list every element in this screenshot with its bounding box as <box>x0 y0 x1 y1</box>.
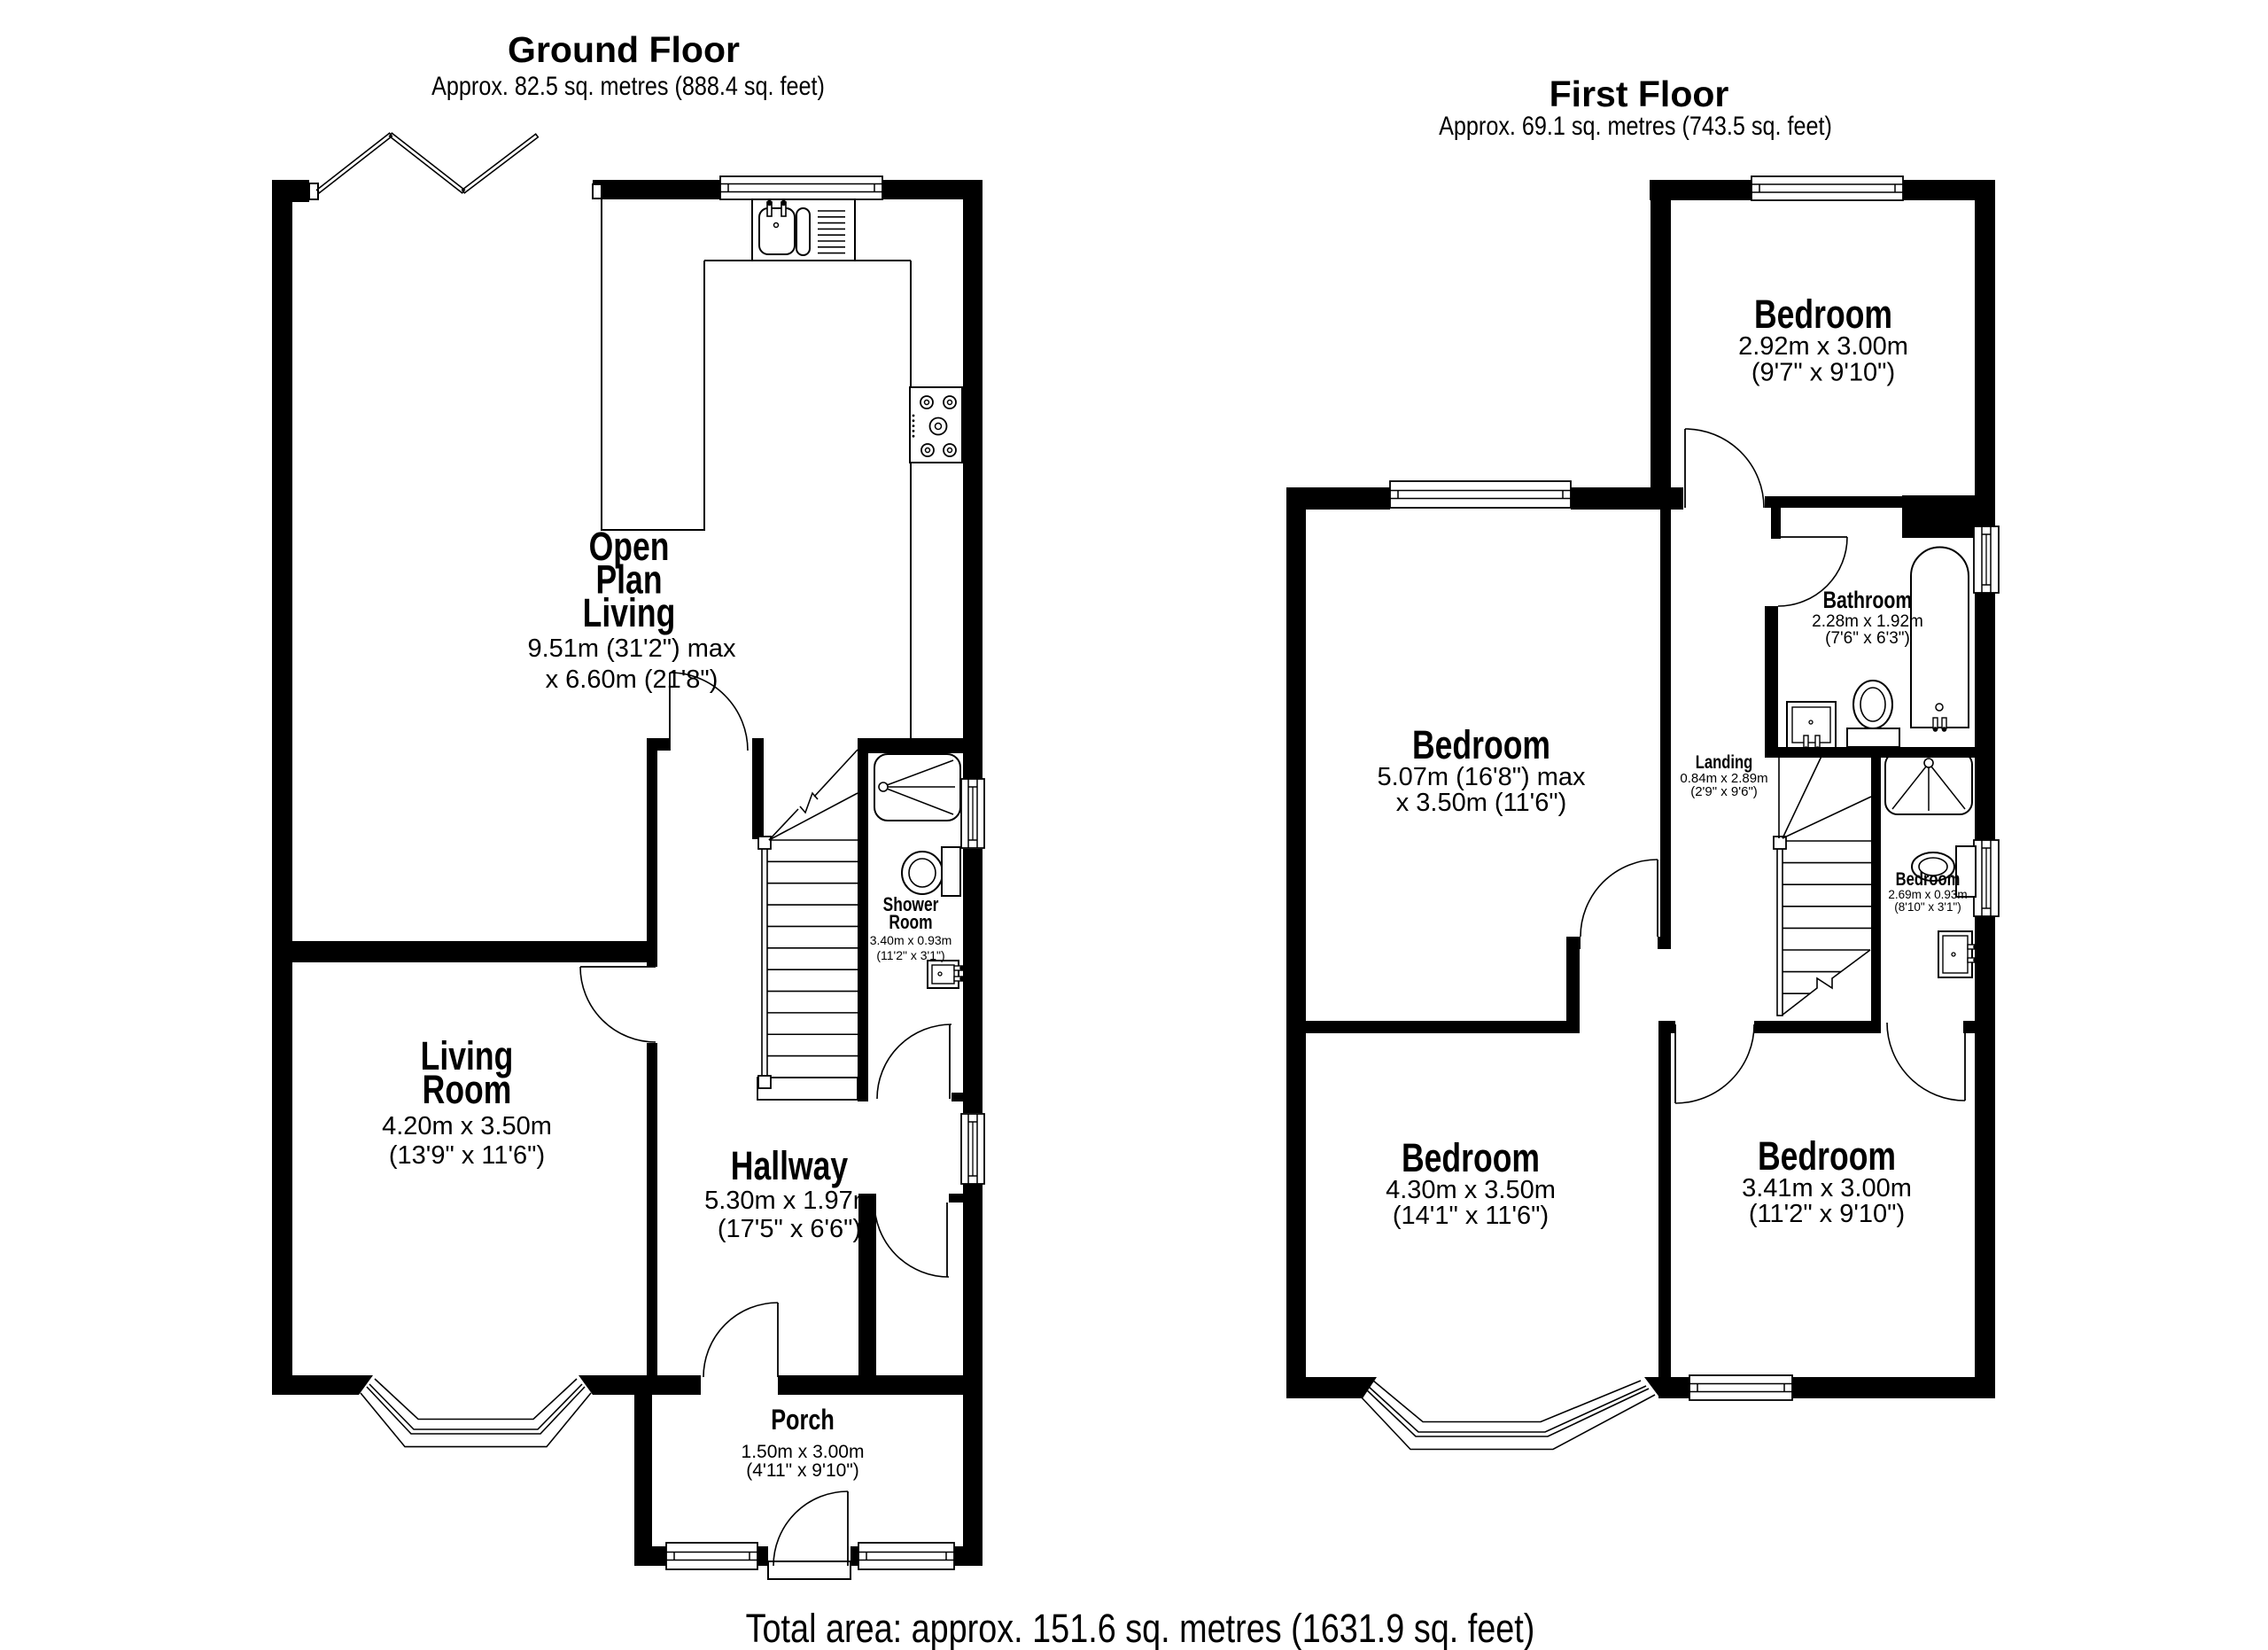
svg-text:5.30m x 1.97m: 5.30m x 1.97m <box>704 1187 874 1215</box>
svg-text:x 6.60m (21'8"): x 6.60m (21'8") <box>546 665 718 694</box>
svg-text:Room: Room <box>423 1067 512 1112</box>
svg-text:(13'9" x 11'6"): (13'9" x 11'6") <box>389 1141 545 1170</box>
svg-text:(14'1" x 11'6"): (14'1" x 11'6") <box>1393 1202 1549 1230</box>
svg-text:(11'2" x 9'10"): (11'2" x 9'10") <box>1749 1200 1905 1228</box>
svg-text:2.69m x 0.93m: 2.69m x 0.93m <box>1888 888 1967 901</box>
svg-text:(11'2" x 3'1"): (11'2" x 3'1") <box>876 948 944 962</box>
svg-text:Bedroom: Bedroom <box>1412 722 1550 767</box>
svg-text:(8'10" x 3'1"): (8'10" x 3'1") <box>1894 900 1961 914</box>
svg-text:Hallway: Hallway <box>731 1143 849 1188</box>
svg-text:(2'9" x 9'6"): (2'9" x 9'6") <box>1690 784 1758 799</box>
svg-text:9.51m (31'2") max: 9.51m (31'2") max <box>527 634 736 663</box>
svg-text:3.40m x 0.93m: 3.40m x 0.93m <box>870 933 952 947</box>
svg-text:(7'6" x 6'3"): (7'6" x 6'3") <box>1825 629 1910 648</box>
svg-text:3.41m x 3.00m: 3.41m x 3.00m <box>1742 1174 1912 1202</box>
svg-text:Approx. 82.5 sq. metres (888.4: Approx. 82.5 sq. metres (888.4 sq. feet) <box>431 71 825 101</box>
svg-text:Ground Floor: Ground Floor <box>508 29 740 70</box>
svg-text:(4'11" x 9'10"): (4'11" x 9'10") <box>746 1460 859 1481</box>
svg-text:x 3.50m (11'6"): x 3.50m (11'6") <box>1396 789 1567 817</box>
svg-text:Living: Living <box>583 590 676 635</box>
svg-text:Room: Room <box>889 912 932 933</box>
svg-text:4.30m x 3.50m: 4.30m x 3.50m <box>1386 1176 1556 1204</box>
svg-text:(9'7" x 9'10"): (9'7" x 9'10") <box>1751 359 1895 387</box>
svg-text:2.28m x 1.92m: 2.28m x 1.92m <box>1812 612 1923 631</box>
svg-text:Porch: Porch <box>771 1405 835 1436</box>
svg-text:(17'5" x 6'6"): (17'5" x 6'6") <box>718 1215 861 1243</box>
svg-text:Total area: approx. 151.6 sq.: Total area: approx. 151.6 sq. metres (16… <box>746 1606 1535 1650</box>
svg-text:1.50m x 3.00m: 1.50m x 3.00m <box>742 1442 865 1462</box>
svg-text:5.07m (16'8") max: 5.07m (16'8") max <box>1377 763 1586 791</box>
svg-text:Approx. 69.1 sq. metres (743.5: Approx. 69.1 sq. metres (743.5 sq. feet) <box>1439 111 1832 141</box>
svg-text:Bedroom: Bedroom <box>1754 292 1892 337</box>
svg-text:Bedroom: Bedroom <box>1758 1133 1896 1179</box>
svg-text:Bedroom: Bedroom <box>1402 1135 1540 1180</box>
svg-text:First Floor: First Floor <box>1550 74 1729 114</box>
svg-text:2.92m x 3.00m: 2.92m x 3.00m <box>1738 332 1908 361</box>
svg-text:4.20m x 3.50m: 4.20m x 3.50m <box>382 1112 552 1140</box>
svg-text:Bathroom: Bathroom <box>1823 588 1913 614</box>
